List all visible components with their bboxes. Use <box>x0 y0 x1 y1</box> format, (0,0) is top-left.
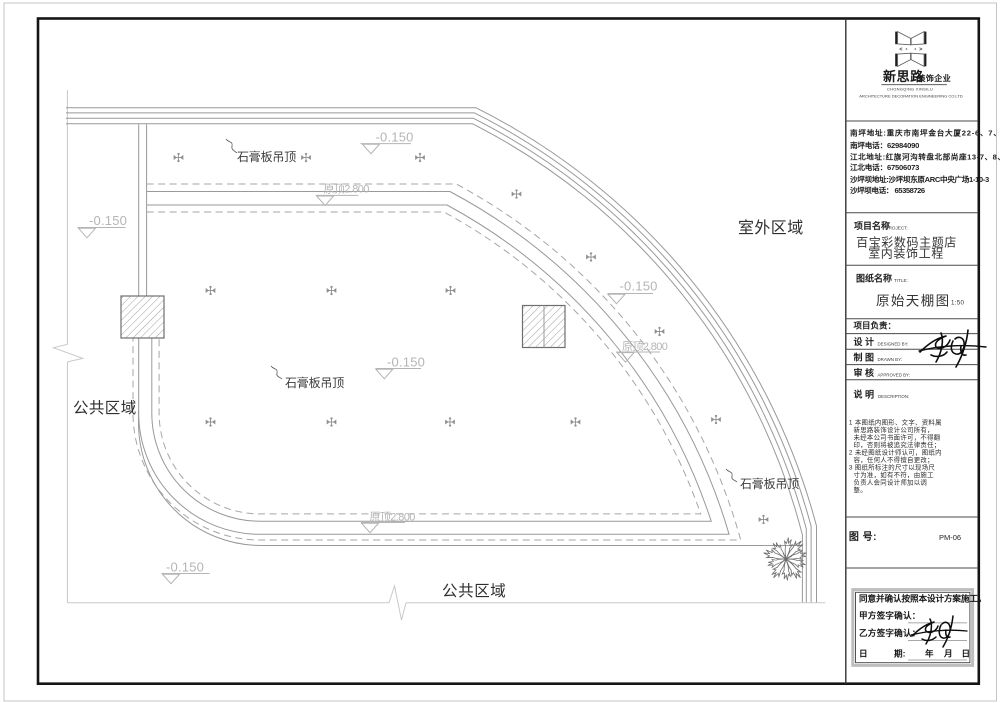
svg-text:月: 月 <box>943 649 953 659</box>
svg-text:-0.150: -0.150 <box>166 560 204 575</box>
svg-text:说 明: 说 明 <box>854 389 875 400</box>
svg-text:公共区域: 公共区域 <box>442 582 506 600</box>
svg-text:制 图: 制 图 <box>854 352 875 363</box>
svg-text:原顶2.800: 原顶2.800 <box>324 183 370 196</box>
svg-text:年: 年 <box>925 648 934 659</box>
svg-text:1:50: 1:50 <box>951 300 965 307</box>
svg-text:容，任何人不得擅自更改；: 容，任何人不得擅自更改； <box>854 455 934 464</box>
svg-text:寸为准，如有不符，由施工: 寸为准，如有不符，由施工 <box>854 470 935 479</box>
svg-text:1 本图纸内图形、文字、资料属: 1 本图纸内图形、文字、资料属 <box>849 418 942 427</box>
svg-text:设 计: 设 计 <box>854 336 875 347</box>
svg-text:沙坪坝地址:沙坪坝东原ARC中央广场1-10-3: 沙坪坝地址:沙坪坝东原ARC中央广场1-10-3 <box>850 174 989 184</box>
svg-text:甲方签字确认：: 甲方签字确认： <box>859 610 921 621</box>
svg-text:原顶2.800: 原顶2.800 <box>370 511 416 524</box>
svg-text:DESIGNED BY:: DESIGNED BY: <box>878 342 909 347</box>
svg-text:2 未经图纸设计师认可，图纸内: 2 未经图纸设计师认可，图纸内 <box>849 448 942 457</box>
svg-text:APPROVED BY:: APPROVED BY: <box>878 373 910 378</box>
svg-text:-0.150: -0.150 <box>376 130 414 145</box>
svg-text:公共区域: 公共区域 <box>73 399 137 417</box>
svg-text:-0.150: -0.150 <box>387 355 425 370</box>
svg-text:ARCHITECTURE DECORATION ENGINE: ARCHITECTURE DECORATION ENGINEERING CO.L… <box>859 93 963 98</box>
svg-text:-0.150: -0.150 <box>620 279 658 294</box>
svg-text:石膏板吊顶: 石膏板吊顶 <box>740 476 799 491</box>
svg-text:DRAWN BY:: DRAWN BY: <box>878 357 902 362</box>
svg-text:期:: 期: <box>894 648 906 659</box>
svg-text:南坪电话：62984090: 南坪电话：62984090 <box>850 140 919 150</box>
svg-text:CHONGQING XINSILU: CHONGQING XINSILU <box>887 87 933 92</box>
svg-text:图纸名称: 图纸名称 <box>856 273 892 284</box>
svg-text:原顶2.800: 原顶2.800 <box>622 340 668 353</box>
svg-text:沙坪坝电话： 65358726: 沙坪坝电话： 65358726 <box>850 185 925 195</box>
svg-text:整。: 整。 <box>854 485 867 494</box>
svg-text:图 号:: 图 号: <box>849 531 877 543</box>
svg-text:项目负责：: 项目负责： <box>854 321 897 331</box>
svg-text:原始天棚图: 原始天棚图 <box>876 294 951 309</box>
svg-text:印，否则将被追究法律责任；: 印，否则将被追究法律责任； <box>854 440 941 449</box>
svg-text:PROJECT:: PROJECT: <box>886 226 908 231</box>
svg-text:新思路装饰设计公司所有，: 新思路装饰设计公司所有， <box>854 425 934 434</box>
svg-text:未经本公司书面许可，不得翻: 未经本公司书面许可，不得翻 <box>854 433 941 442</box>
svg-text:同意并确认按照本设计方案施工。: 同意并确认按照本设计方案施工。 <box>859 593 986 604</box>
svg-text:审 核: 审 核 <box>854 367 875 378</box>
svg-text:日: 日 <box>962 649 971 659</box>
svg-text:乙方签字确认：: 乙方签字确认： <box>859 627 921 638</box>
svg-text:室外区域: 室外区域 <box>738 219 804 237</box>
svg-text:石膏板吊顶: 石膏板吊顶 <box>285 375 344 390</box>
svg-text:PM-06: PM-06 <box>939 533 961 542</box>
svg-text:室内装饰工程: 室内装饰工程 <box>868 246 944 261</box>
svg-text:3 图纸所标注的尺寸以现场尺: 3 图纸所标注的尺寸以现场尺 <box>849 463 936 472</box>
svg-text:石膏板吊顶: 石膏板吊顶 <box>237 149 296 164</box>
svg-text:DESCRIPTION:: DESCRIPTION: <box>878 394 909 399</box>
svg-text:-0.150: -0.150 <box>89 213 127 228</box>
svg-text:装饰企业: 装饰企业 <box>917 73 952 83</box>
svg-text:江北电话：67506073: 江北电话：67506073 <box>850 162 919 172</box>
svg-text:江北地址:红旗河沟转盘北部尚座13-7、8、9: 江北地址:红旗河沟转盘北部尚座13-7、8、9 <box>850 151 1000 161</box>
svg-text:TITLE:: TITLE: <box>894 278 908 283</box>
svg-text:负责人会同设计师加以调: 负责人会同设计师加以调 <box>854 478 928 487</box>
svg-text:南坪地址:重庆市南坪金台大厦22-6、7、9、10: 南坪地址:重庆市南坪金台大厦22-6、7、9、10 <box>850 128 1000 138</box>
svg-text:日: 日 <box>859 649 868 659</box>
